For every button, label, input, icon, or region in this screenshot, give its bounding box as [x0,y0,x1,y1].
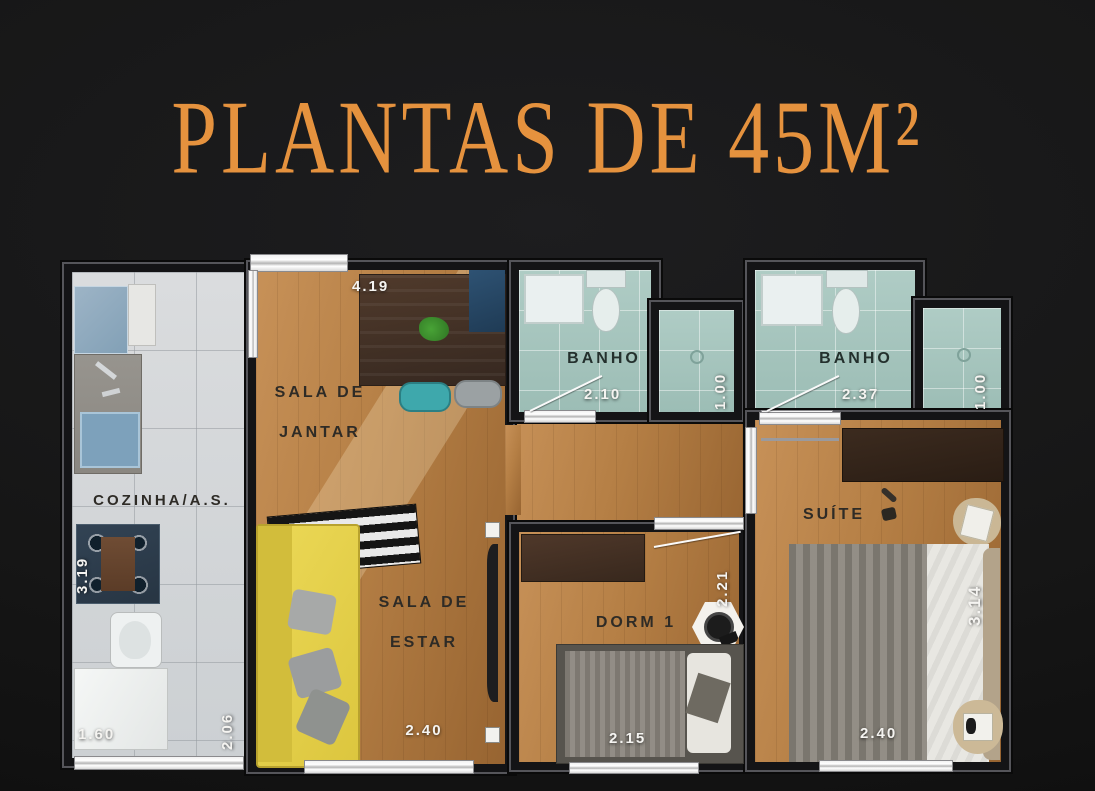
dim-bathroom-2-shower: 1.00 [972,348,989,410]
hallway-passage [505,425,521,515]
bed-single [556,644,744,764]
sofa [256,524,360,768]
room-label-bedroom-1: DORM 1 [586,614,686,632]
bed-pillow [687,653,731,753]
room-label-dining-line2: JANTAR [260,424,380,442]
kitchen-sink [80,412,140,468]
dim-kitchen-bottom: 1.60 [78,726,115,743]
cutting-board [101,537,135,591]
bathroom-sink [524,274,584,324]
wardrobe [521,534,645,582]
dining-chair-gray [454,380,502,408]
bed-blanket [789,544,927,762]
dim-dining-top: 4.19 [352,278,389,295]
window [569,762,699,774]
wardrobe [842,428,1004,482]
window [250,254,348,272]
fridge [74,286,128,354]
door-opening [759,412,841,425]
shower-drain-icon [957,348,971,362]
side-table-round [953,498,1001,546]
toilet [586,270,626,288]
window [304,760,474,774]
window [819,760,953,772]
dim-bedroom-1-bottom: 2.15 [609,730,646,747]
toilet [826,270,868,288]
door-opening [248,270,258,358]
dim-bathroom-1-shower: 1.00 [712,348,729,410]
book-icon [960,504,995,542]
speaker [485,727,500,743]
room-label-bathroom-2: BANHO [806,350,906,368]
book-icon [963,713,993,741]
door-opening [654,517,744,530]
dim-bedroom-1-right: 2.21 [714,545,731,607]
room-label-living-line2: ESTAR [364,634,484,652]
closet-rod [761,438,839,441]
bathroom-sink [761,274,823,326]
page-title: PLANTAS DE 45M² [0,78,1095,198]
room-label-living: SALA DE ESTAR [364,594,484,652]
sofa-pillow [287,588,337,635]
dim-suite-bottom: 2.40 [860,725,897,742]
hallway-floor [511,412,751,532]
dining-chair-teal [399,382,451,412]
shower-drain-icon [690,350,704,364]
sofa-chaise [258,526,292,762]
dim-bathroom-2-bottom: 2.37 [842,386,879,403]
side-table-round [953,700,1003,754]
room-label-suite: SUÍTE [794,506,874,524]
door-opening [524,410,596,423]
tv [487,544,498,702]
book-cover-art [966,718,976,734]
door-opening [745,427,757,514]
room-label-bathroom-1: BANHO [549,350,659,368]
laundry-sink [110,612,162,668]
room-label-kitchen: COZINHA/A.S. [82,492,242,509]
dim-bathroom-1-bottom: 2.10 [584,386,621,403]
speaker [485,522,500,538]
toilet-bowl [832,288,860,334]
sideboard [469,270,505,332]
room-label-dining-line1: SALA DE [260,384,380,402]
dim-living-bottom: 2.40 [369,722,479,739]
room-label-dining: SALA DE JANTAR [260,384,380,442]
pillow-cushion [685,673,730,723]
toilet-bowl [592,288,620,332]
laundry-sink-basin [119,621,151,659]
dim-kitchen-left: 3.19 [74,534,91,594]
room-label-living-line1: SALA DE [364,594,484,612]
floor-plan: COZINHA/A.S. 3.19 1.60 2.06 4.19 SALA DE… [64,262,1012,786]
dim-suite-right: 3.14 [965,540,985,626]
plant-icon [419,317,449,341]
window [74,756,244,770]
dim-kitchen-right: 2.06 [219,690,236,750]
kitchen-cabinet [128,284,156,346]
